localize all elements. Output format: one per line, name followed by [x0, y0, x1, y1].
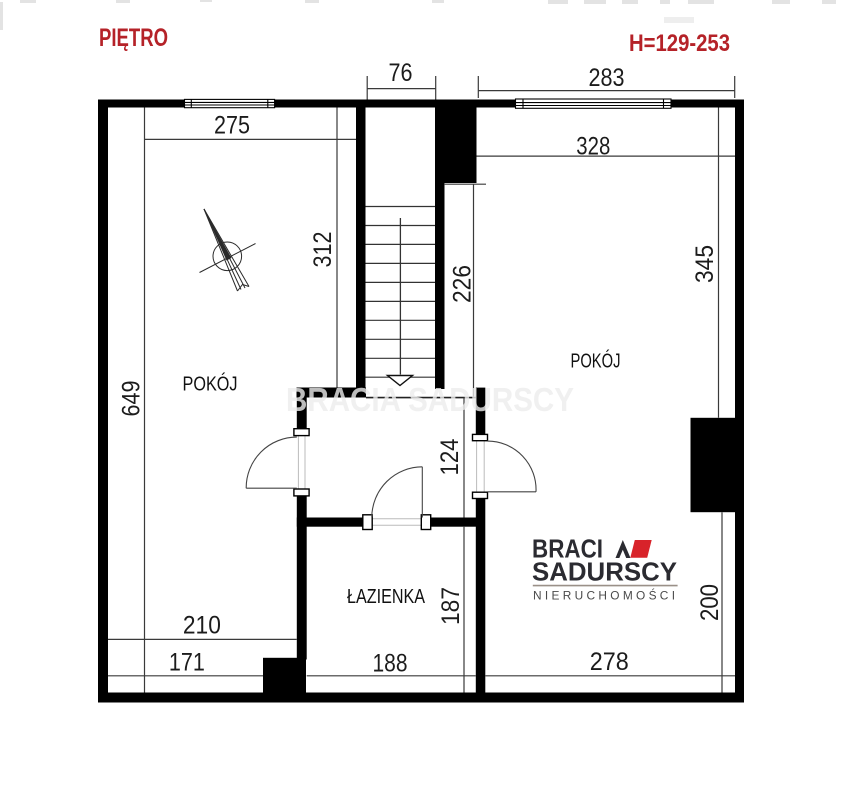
- svg-text:328: 328: [576, 133, 610, 161]
- svg-text:187: 187: [437, 587, 465, 625]
- svg-text:283: 283: [589, 64, 625, 92]
- svg-text:345: 345: [691, 245, 719, 283]
- svg-text:BRACIA SADURSCY: BRACIA SADURSCY: [286, 382, 574, 419]
- svg-text:649: 649: [117, 381, 145, 417]
- svg-text:ŁAZIENKA: ŁAZIENKA: [347, 586, 426, 608]
- svg-text:278: 278: [590, 648, 629, 676]
- svg-text:76: 76: [389, 59, 413, 87]
- svg-text:210: 210: [183, 612, 221, 640]
- svg-text:200: 200: [696, 584, 724, 621]
- svg-text:312: 312: [309, 232, 337, 268]
- svg-text:171: 171: [169, 649, 205, 677]
- svg-text:N I E R U C H O M O Ś C I: N I E R U C H O M O Ś C I: [533, 588, 675, 603]
- svg-text:124: 124: [436, 438, 464, 475]
- svg-text:PIĘTRO: PIĘTRO: [99, 24, 168, 52]
- svg-text:226: 226: [448, 265, 476, 303]
- svg-text:POKÓJ: POKÓJ: [183, 373, 238, 396]
- svg-text:POKÓJ: POKÓJ: [571, 350, 621, 373]
- svg-text:H=129-253: H=129-253: [629, 30, 730, 57]
- svg-text:275: 275: [214, 111, 250, 139]
- svg-text:SADURSCY: SADURSCY: [532, 557, 677, 587]
- svg-text:188: 188: [373, 649, 408, 677]
